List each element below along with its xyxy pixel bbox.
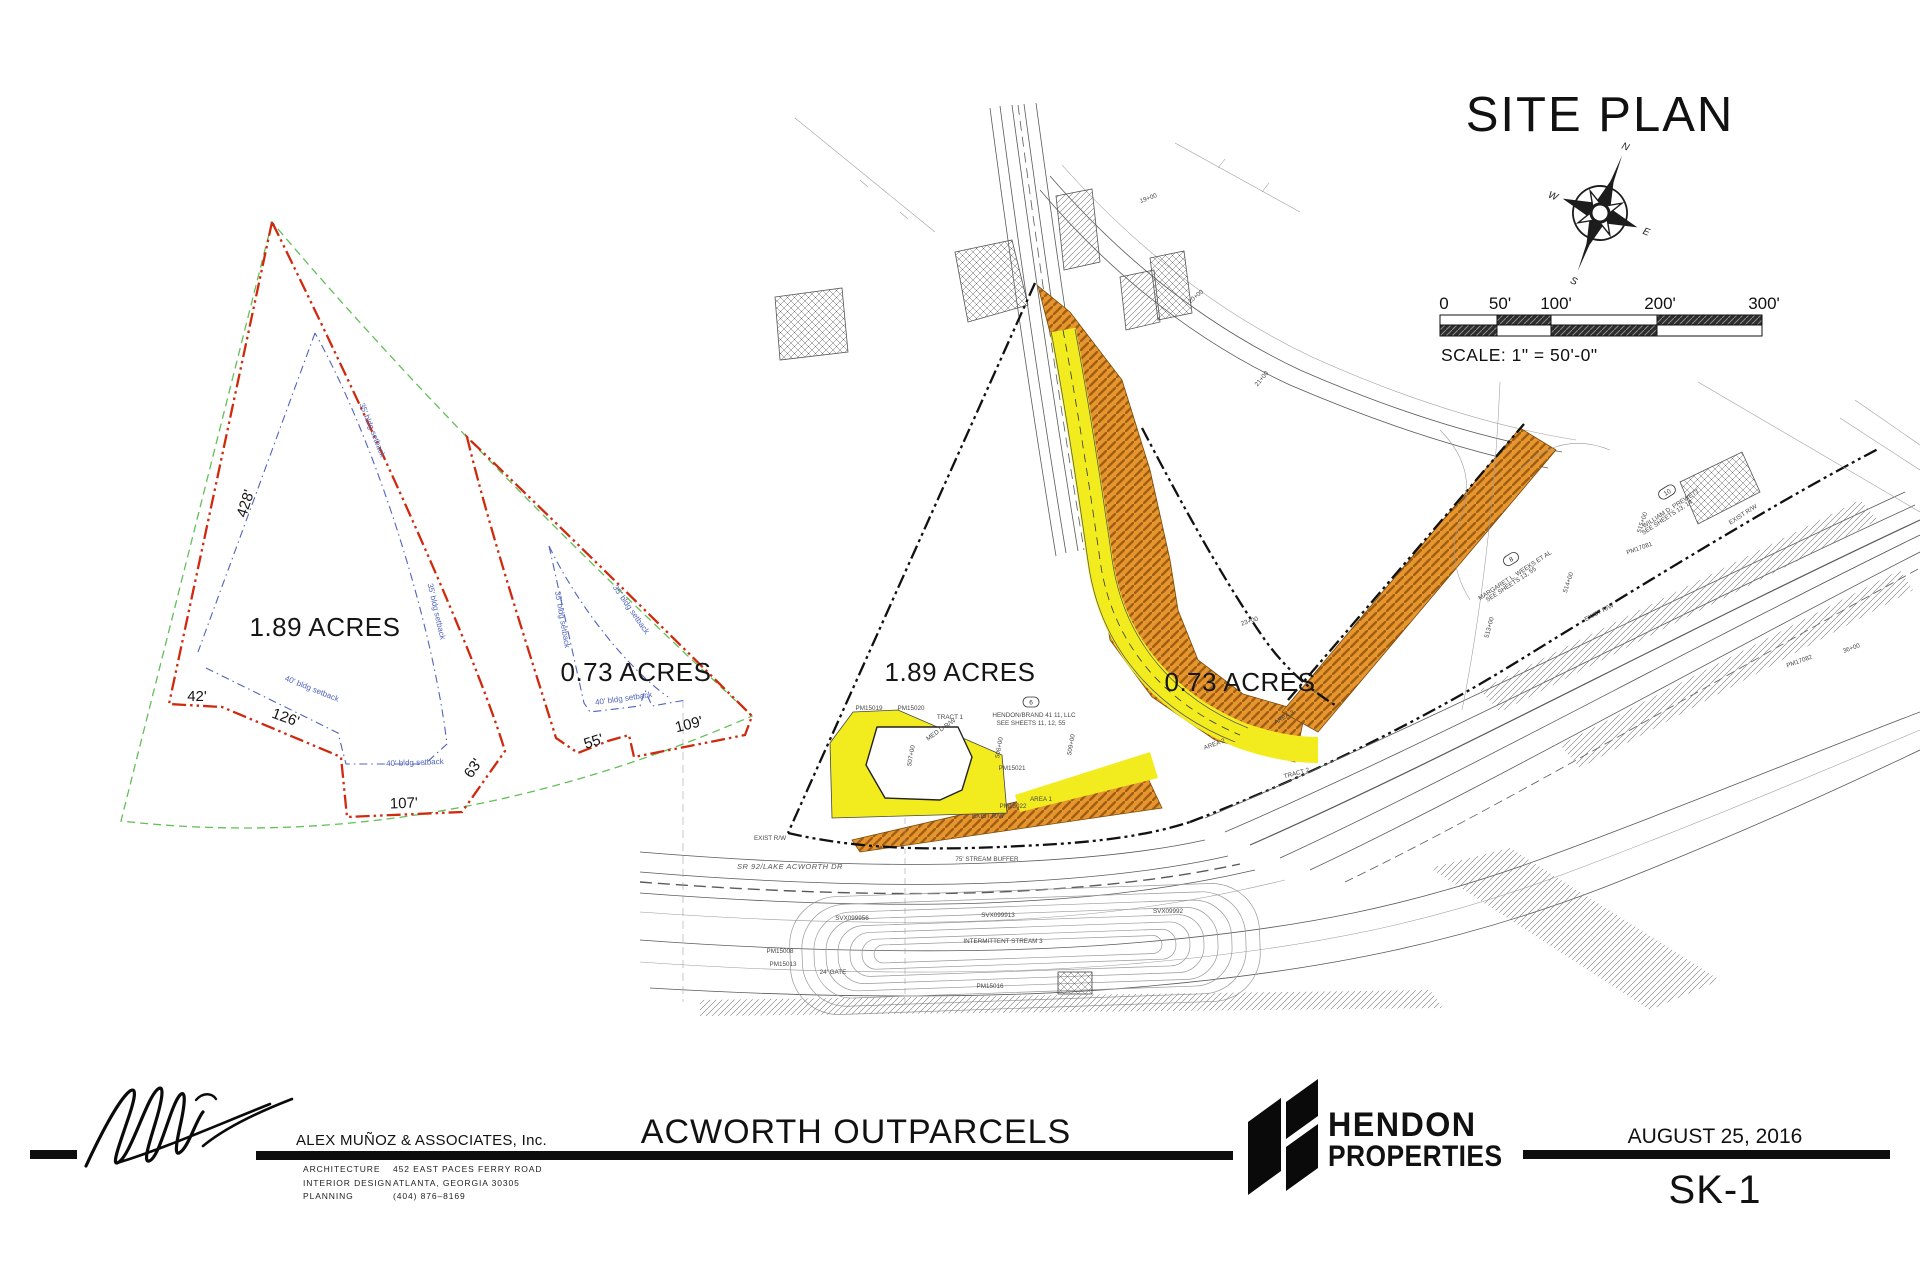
annotation-label: AREA 1 (1030, 796, 1053, 803)
page-title: SITE PLAN (1466, 88, 1735, 142)
client-line2: PROPERTIES (1328, 1138, 1503, 1172)
survey-plan-drawing: 6 8 10 1.89 ACRES0.73 ACRESTRACT 1MED D … (640, 103, 1920, 1016)
annotation-label: 75' STREAM BUFFER (955, 856, 1019, 863)
annotation-label: 126' (270, 705, 302, 731)
annotation-label: SR 92/LAKE ACWORTH DR (737, 862, 843, 871)
scale-text: SCALE: 1" = 50'-0" (1441, 345, 1598, 365)
yellow-parcel (830, 710, 1007, 818)
annotation-label: PM15016 (977, 983, 1004, 990)
rule-left-stub (30, 1150, 77, 1159)
annotation-label: 0.73 ACRES (561, 657, 712, 687)
scale-bar (1440, 315, 1762, 336)
annotation-label: 35' bldg setback (553, 590, 572, 649)
north-arrow-icon: N S E W (1521, 122, 1678, 306)
right-road-hatch (1480, 500, 1913, 768)
compass-n: N (1620, 141, 1631, 154)
scale-tick: 50' (1489, 294, 1511, 313)
annotation-label: SVX099956 (835, 915, 869, 922)
firm-address: 452 EAST PACES FERRY ROAD (393, 1164, 542, 1174)
annotation-label: SVX09992 (1153, 908, 1184, 915)
hatch-patches (775, 189, 1760, 524)
annotation-label: PM15013 (770, 961, 797, 968)
rule-center (256, 1151, 1233, 1160)
scale-tick: 100' (1540, 294, 1572, 313)
scale-tick: 0 (1439, 294, 1448, 313)
annotation-label: SEE SHEETS 11, 12, 55 (997, 720, 1066, 727)
parcel-diagram: 428'42'126'107'63'55'109'1.89 ACRES0.73 … (121, 222, 752, 828)
firm-name: ALEX MUÑOZ & ASSOCIATES, Inc. (296, 1132, 547, 1149)
annotation-label: 109' (673, 713, 704, 736)
annotation-label: 40' bldg setback (284, 674, 342, 704)
site-plan-sheet: 6 8 10 1.89 ACRES0.73 ACRESTRACT 1MED D … (0, 0, 1920, 1280)
firm-service: PLANNING (303, 1191, 354, 1201)
client-name2: PROPERTIES (1328, 1138, 1503, 1172)
annotation-label: 35' bldg setback (357, 402, 387, 460)
sheet-date: AUGUST 25, 2016 (1628, 1125, 1803, 1148)
annotation-label: PM17082 (1786, 654, 1814, 670)
annotation-label: PM15008 (767, 948, 794, 955)
annotation-label: 21+00 (1253, 370, 1270, 388)
firm-phone: (404) 876–8169 (393, 1191, 466, 1201)
annotation-label: SEE SHEETS 13, 14 (1641, 499, 1695, 537)
annotation-label: 20+00 (1187, 288, 1205, 305)
plan-header: SITE PLAN N S E W 0 (1439, 88, 1780, 365)
callout-label: 6 (1029, 700, 1033, 707)
rule-right (1523, 1150, 1890, 1159)
annotation-label: HENDON/BRAND 41 11, LLC (992, 712, 1076, 719)
annotation-label: EXIST R/W (1583, 602, 1615, 623)
annotation-label: PM17081 (1626, 541, 1654, 557)
firm-service: ARCHITECTURE (303, 1164, 380, 1174)
annotation-label: SEE SHEETS 13, 55 (1485, 566, 1539, 604)
callout-6: 6 (1023, 697, 1039, 707)
scale-tick: 200' (1644, 294, 1676, 313)
annotation-label: 107' (390, 795, 419, 813)
annotation-label: 42' (187, 688, 207, 705)
green-outline (121, 222, 752, 828)
project-title: ACWORTH OUTPARCELS (641, 1113, 1071, 1151)
scale-tick: 300' (1748, 294, 1780, 313)
annotation-label: EXIST R/W (972, 813, 1004, 820)
annotation-label: 513+00 (1483, 616, 1495, 639)
annotation-label: 24' GATE (820, 969, 847, 976)
compass-w: W (1546, 190, 1560, 204)
annotation-label: 55' (582, 731, 606, 753)
annotation-label: 509+00 (1066, 733, 1077, 756)
annotation-label: 1.89 ACRES (250, 612, 401, 642)
annotation-label: PM15020 (898, 705, 925, 712)
annotation-label: SVX099913 (981, 912, 1015, 919)
annotation-label: PM15019 (856, 705, 883, 712)
annotation-label: INTERMITTENT STREAM 3 (963, 938, 1043, 945)
annotation-label: 36+00 (1842, 642, 1861, 655)
firm-address: ATLANTA, GEORGIA 30305 (393, 1178, 520, 1188)
red-parcel-189 (169, 222, 505, 817)
annotation-label: 40' bldg setback (386, 757, 445, 768)
scale-tick-labels: 0 50' 100' 200' 300' (1439, 294, 1780, 313)
annotation-label: 514+00 (1562, 571, 1575, 594)
annotation-label: PM15022 (1000, 803, 1027, 810)
sheet-number: SK-1 (1669, 1168, 1762, 1212)
firm-service: INTERIOR DESIGN (303, 1178, 392, 1188)
annotation-label: PM15021 (999, 765, 1026, 772)
annotation-label: 19+00 (1139, 192, 1158, 205)
annotation-label: 1.89 ACRES (885, 657, 1036, 687)
callout-8: 8 (1502, 551, 1521, 568)
annotation-label: 0.73 ACRES (1165, 667, 1316, 697)
annotation-label: 428' (233, 488, 258, 520)
title-block: ALEX MUÑOZ & ASSOCIATES, Inc. ARCHITECTU… (30, 1079, 1890, 1212)
red-parcel-073 (467, 437, 752, 757)
compass-e: E (1641, 226, 1651, 239)
compass-s: S (1569, 275, 1579, 288)
annotation-label: EXIST R/W (754, 835, 786, 842)
annotation-label: 40' bldg setback (595, 690, 654, 707)
annotation-label: 508+00 (994, 736, 1005, 759)
annotation-label: 63' (461, 755, 486, 781)
callout-10: 10 (1657, 483, 1678, 501)
hendon-logo-icon (1248, 1079, 1318, 1195)
